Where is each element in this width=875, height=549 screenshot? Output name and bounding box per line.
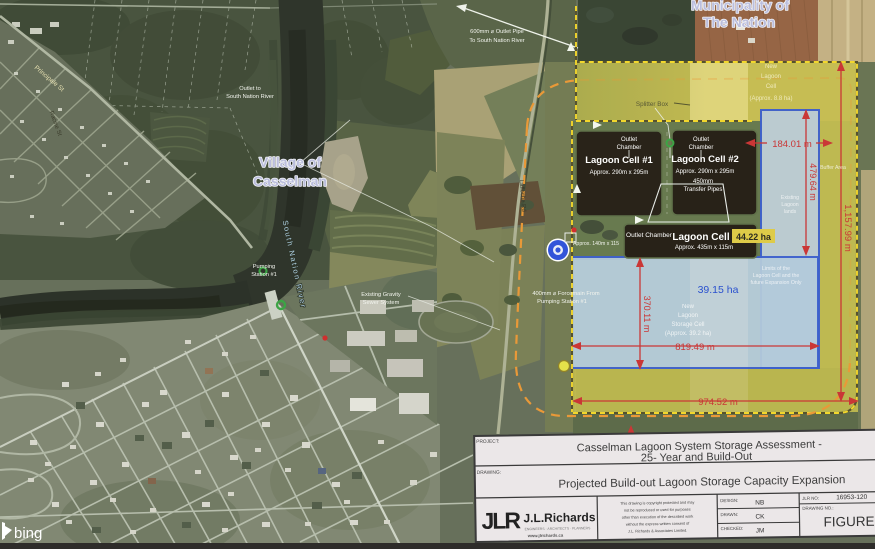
svg-text:J.L.Richards: J.L.Richards — [523, 510, 596, 525]
svg-text:DESIGN:: DESIGN: — [720, 498, 738, 503]
svg-text:bing: bing — [14, 525, 42, 542]
svg-text:JM: JM — [756, 527, 765, 534]
svg-text:DRAWING NO.:: DRAWING NO.: — [802, 505, 833, 510]
svg-text:DRAWN:: DRAWN: — [720, 512, 738, 517]
svg-text:CK: CK — [755, 513, 765, 520]
svg-text:16953-120: 16953-120 — [836, 494, 868, 501]
svg-text:DRAWING:: DRAWING: — [477, 470, 501, 476]
svg-text:25- Year and Build-Out: 25- Year and Build-Out — [641, 451, 752, 465]
svg-text:CHECKED:: CHECKED: — [721, 526, 744, 531]
svg-text:www.jlrichards.ca: www.jlrichards.ca — [527, 533, 564, 539]
svg-text:JLR NO:: JLR NO: — [802, 496, 819, 501]
svg-text:NB: NB — [755, 499, 764, 506]
svg-text:PROJECT:: PROJECT: — [476, 439, 499, 445]
svg-text:JLR: JLR — [481, 507, 521, 534]
svg-text:FIGURE: FIGURE — [823, 514, 874, 530]
